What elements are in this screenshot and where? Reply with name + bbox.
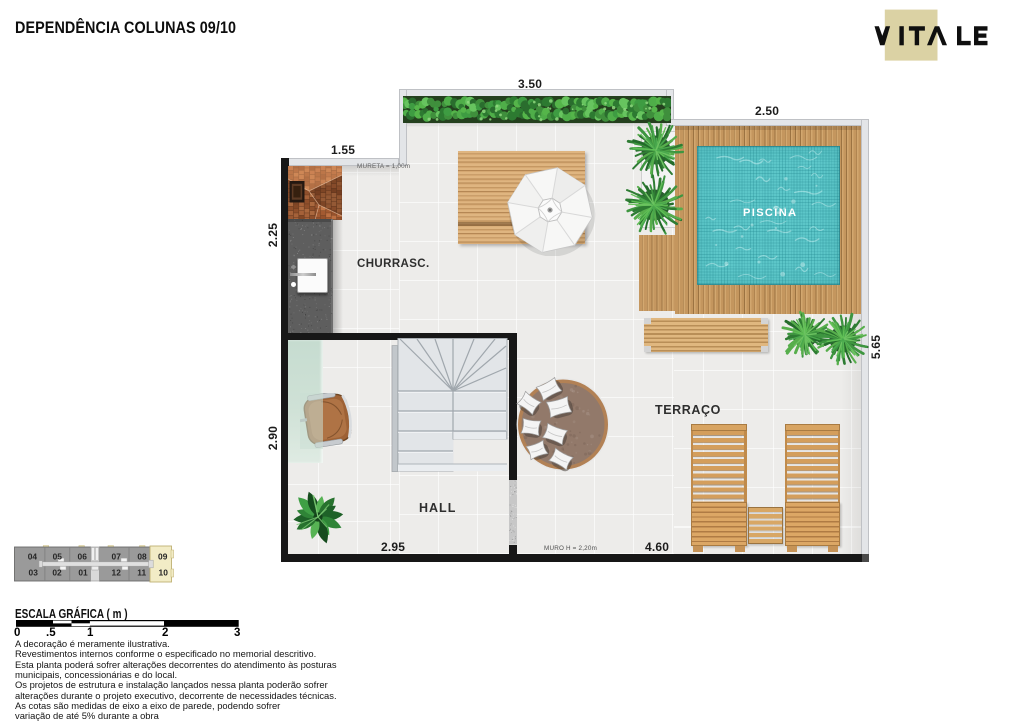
- svg-text:12: 12: [112, 568, 122, 578]
- svg-text:06: 06: [78, 551, 88, 561]
- svg-text:11: 11: [137, 568, 146, 578]
- svg-text:09: 09: [158, 551, 168, 561]
- svg-text:08: 08: [137, 551, 147, 561]
- svg-text:03: 03: [29, 568, 39, 578]
- svg-text:10: 10: [159, 568, 169, 578]
- svg-text:01: 01: [78, 568, 88, 578]
- svg-text:07: 07: [112, 551, 122, 561]
- svg-text:02: 02: [52, 568, 62, 578]
- svg-text:04: 04: [28, 551, 38, 561]
- svg-text:05: 05: [53, 551, 63, 561]
